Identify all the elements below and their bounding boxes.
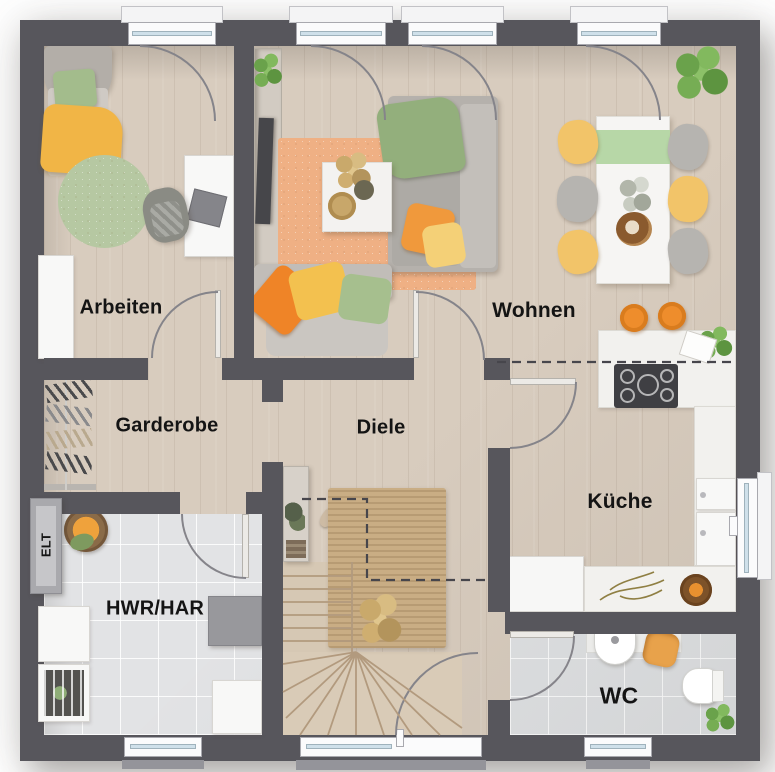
fruit-bowl: [680, 574, 712, 606]
door-leaf-wc: [510, 631, 574, 638]
wc-plant: [700, 702, 738, 736]
room-label-kueche: Küche: [587, 490, 652, 514]
sideboard-books: [286, 540, 306, 558]
door-leaf-arbeiten: [215, 290, 221, 358]
sink-faucet: [611, 636, 619, 644]
floor-plan: Arbeiten Wohnen Garderobe Diele Küche HW…: [0, 0, 775, 772]
entrance-step: [296, 760, 486, 770]
sofa-pillow-yellow: [421, 221, 467, 269]
window-glass: [130, 744, 196, 749]
wall-south-arbeiten-left: [44, 358, 148, 380]
coat-rack-bottom-rail: [44, 484, 96, 490]
room-label-garderobe: Garderobe: [116, 415, 219, 438]
exterior-step: [122, 760, 204, 769]
room-label-arbeiten: Arbeiten: [80, 297, 163, 320]
door-leaf-wohnen: [413, 290, 419, 358]
window-glass: [300, 31, 382, 36]
wall-south-arbeiten-mid: [222, 358, 414, 380]
wall-arbeiten-wohnen: [234, 46, 254, 380]
kitchen-bottom-counter: [584, 566, 736, 612]
wardrobe-cabinet: [38, 255, 74, 359]
window-sill: [401, 6, 504, 23]
window-handle: [729, 516, 738, 536]
decor-bowl: [616, 212, 652, 246]
utility-white-cabinet: [212, 680, 262, 734]
woven-tray: [328, 192, 356, 220]
sink-drain-dot: [700, 530, 706, 536]
sofa-backrest: [460, 104, 496, 268]
corner-fern-plant: [666, 42, 734, 108]
window-glass: [132, 31, 212, 36]
sink-drain-dot: [700, 492, 706, 498]
utility-gray-box: [208, 596, 262, 646]
window-sill: [121, 6, 223, 23]
fridge-cabinet: [508, 556, 584, 612]
toilet-tank: [712, 670, 724, 702]
wall-garderobe-hwr-left: [44, 492, 180, 514]
wall-south-wohnen-right: [484, 358, 510, 380]
room-label-elt: ELT: [39, 533, 54, 557]
wall-hall-wc-stub: [488, 700, 510, 735]
cooktop: [614, 364, 678, 408]
vase: [354, 180, 374, 200]
bar-stool-orange: [658, 302, 686, 330]
room-label-diele: Diele: [357, 417, 406, 440]
round-rug-green: [58, 155, 151, 248]
lowboard-plant: [250, 50, 284, 94]
table-runner-green: [596, 130, 670, 164]
stairs-winder: [283, 652, 462, 735]
window-glass: [581, 31, 657, 36]
room-label-wohnen: Wohnen: [492, 299, 576, 323]
window-glass: [412, 31, 493, 36]
loveseat-pillow-green: [337, 273, 393, 326]
wall-garderobe-diele-stub: [262, 380, 283, 402]
wall-garderobe-hwr-right: [246, 492, 268, 514]
room-label-wc: WC: [600, 683, 639, 710]
door-leaf-hwr: [242, 514, 249, 578]
door-leaf-kueche: [510, 378, 576, 385]
washing-machine: [38, 606, 90, 662]
exterior-step: [586, 760, 650, 769]
window-glass: [744, 483, 749, 573]
laundry-rack-contents: [44, 670, 84, 716]
window-sill: [289, 6, 393, 23]
wall-diele-kueche: [488, 448, 510, 612]
stair-grass-plant: [350, 584, 408, 658]
room-label-hwr: HWR/HAR: [106, 598, 204, 621]
window-glass: [590, 744, 646, 749]
window-sill: [570, 6, 668, 23]
entrance-door-handle: [396, 729, 404, 747]
entrance-sidelight-glass: [306, 744, 392, 749]
window-sill: [757, 472, 772, 580]
bar-stool-orange: [620, 304, 648, 332]
sideboard-decor-plant: [285, 496, 305, 536]
